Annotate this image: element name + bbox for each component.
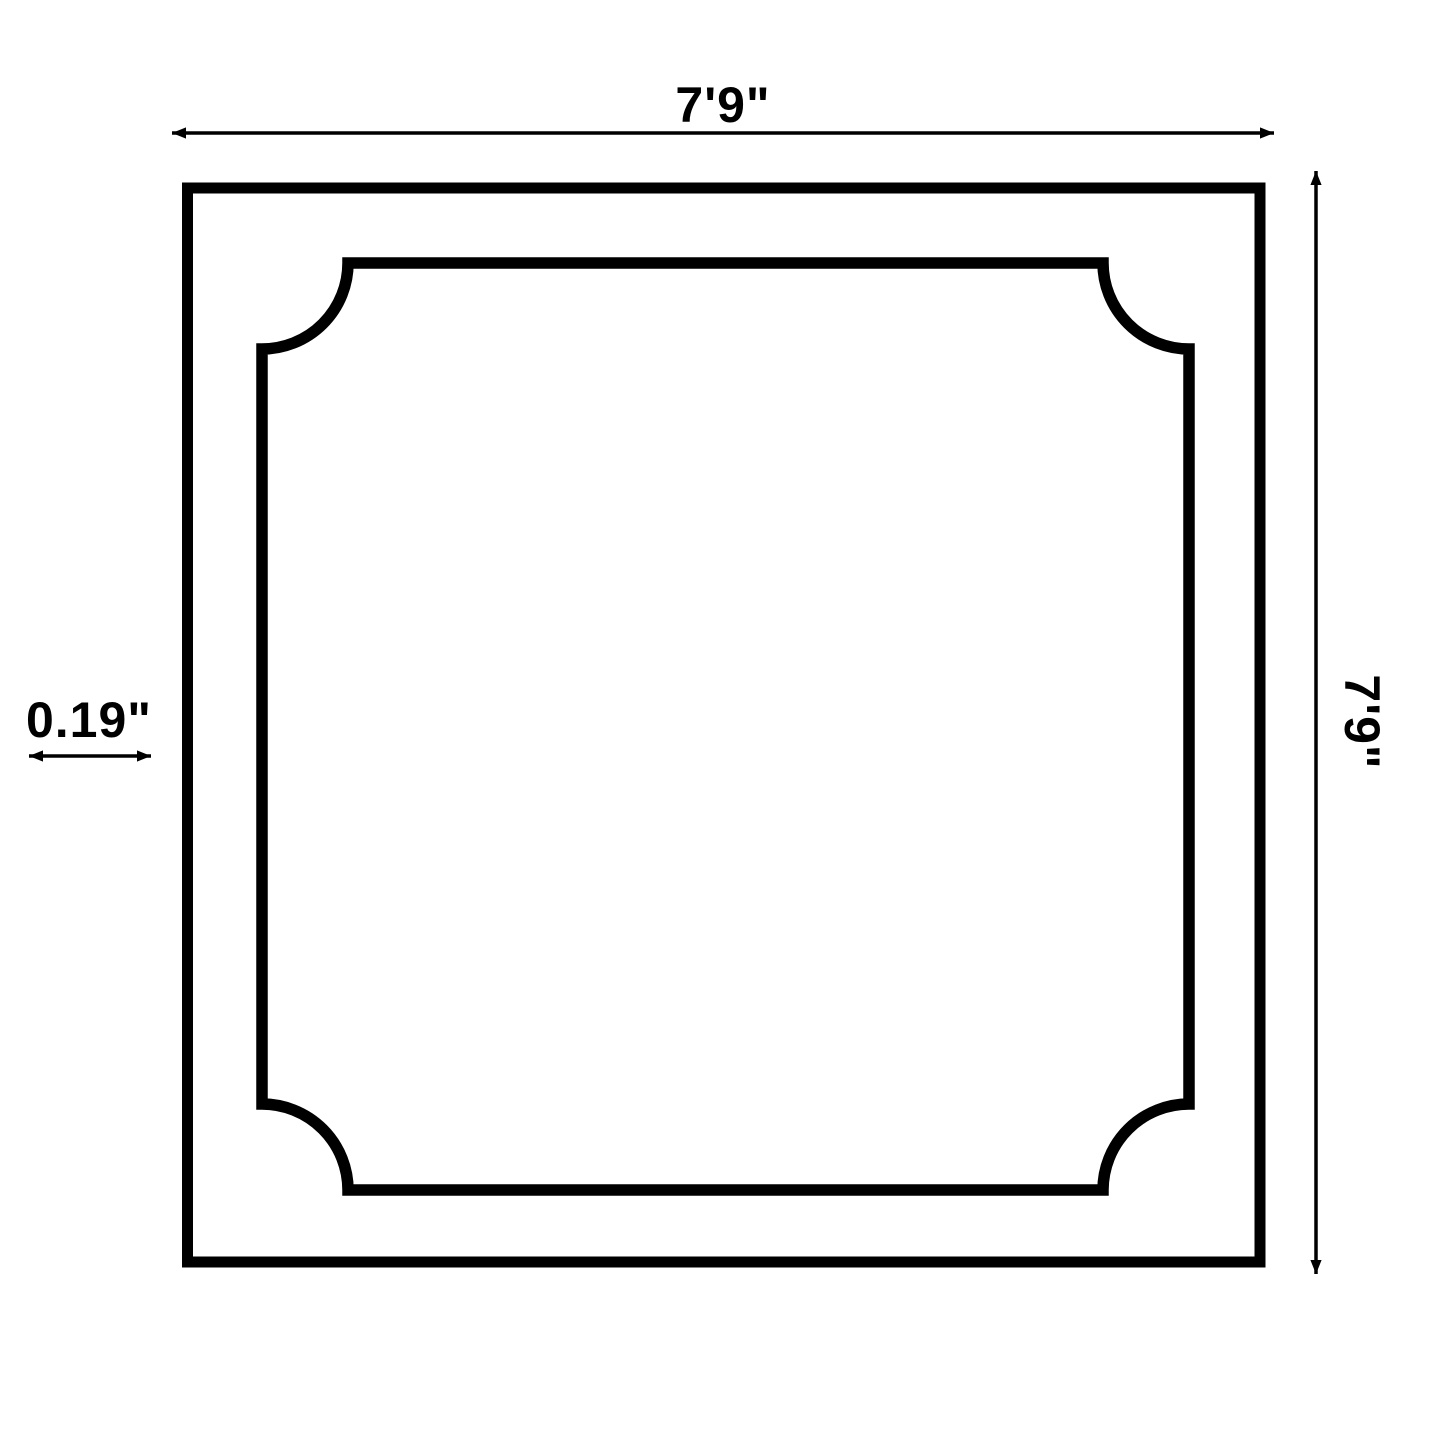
dimension-drawing <box>0 0 1445 1445</box>
inner-scalloped-outline <box>262 263 1189 1190</box>
width-dimension-label: 7'9" <box>675 80 770 130</box>
height-dimension-label: 7'9" <box>1337 674 1387 769</box>
thickness-dimension-label: 0.19" <box>26 695 152 745</box>
outer-square-outline <box>188 188 1261 1262</box>
diagram-canvas: 7'9" 0.19" 7'9" <box>0 0 1445 1445</box>
